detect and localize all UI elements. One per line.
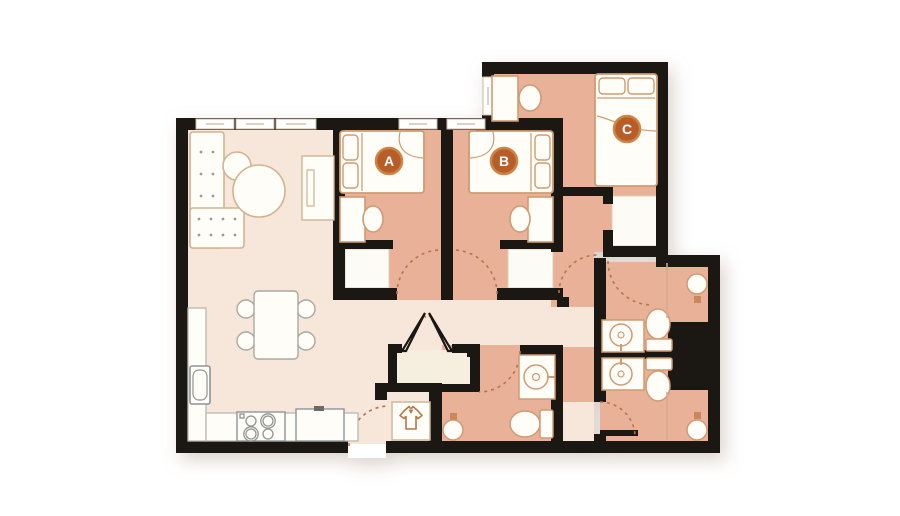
wall-c-left-upper <box>482 62 494 77</box>
shower-head-north <box>694 296 701 303</box>
refrigerator-handle <box>314 406 324 411</box>
refrigerator <box>296 409 344 441</box>
shower-north <box>687 274 707 294</box>
chair-c <box>519 85 541 111</box>
chair-a <box>363 206 383 232</box>
pillow <box>343 163 358 188</box>
wall-closet-c-stub-n <box>603 188 613 204</box>
dining-table <box>254 291 298 359</box>
dining-chair <box>237 332 255 350</box>
wall-laundry-left-stub <box>375 383 387 400</box>
wall-dblcloset-hinge-r <box>452 344 480 353</box>
toilet-tank-south <box>646 358 672 370</box>
wall-corridor-bath-n <box>594 258 606 308</box>
shower-south <box>687 420 707 440</box>
toilet-tank-center <box>540 410 553 438</box>
floor-corridor-junction <box>563 307 594 347</box>
room-badge-c-label: C <box>622 121 632 137</box>
wall-hall-ab <box>441 288 453 300</box>
desk-b <box>528 197 553 242</box>
floor-plan-page: { "plan": { "title": "Three-bedroom apar… <box>0 0 900 516</box>
wall-corridor-bath-s <box>594 434 606 453</box>
shower-head-south <box>694 412 701 419</box>
floor-plan: A B C <box>0 0 900 516</box>
sofa-foot <box>190 208 244 248</box>
laundry-closet <box>392 402 430 440</box>
wall-right-outer <box>708 255 720 453</box>
floor-corridor-south <box>563 402 594 441</box>
pillow <box>343 135 358 160</box>
wall-a-b <box>441 118 453 300</box>
floor-corridor-mid <box>563 347 594 402</box>
wall-hall-b <box>497 288 563 300</box>
toilet-tank-north <box>646 339 672 351</box>
wall-left <box>176 118 188 453</box>
entry-threshold <box>348 444 386 458</box>
desk-c <box>492 76 518 121</box>
wall-closet-c-stub-s <box>603 230 613 246</box>
coffee-table-large <box>233 165 285 217</box>
double-closet-floor <box>396 350 470 384</box>
closet-b <box>508 249 553 288</box>
door-leaf-bath-south <box>600 430 638 436</box>
pillow <box>599 78 625 94</box>
pillow <box>535 163 550 188</box>
wall-closet-c-bottom <box>603 246 668 257</box>
wall-dblcloset-bottom <box>388 384 480 392</box>
shower-head-center <box>450 413 457 420</box>
closet-a <box>345 249 389 288</box>
toilet-bowl-center <box>510 411 540 437</box>
wall-bottom-west <box>176 441 348 453</box>
wall-top-c <box>482 62 668 74</box>
room-badge-b-label: B <box>499 153 509 169</box>
tv <box>307 170 314 206</box>
chair-b <box>510 206 530 232</box>
pillow <box>628 78 654 94</box>
closet-c <box>612 196 658 246</box>
room-badge-a-label: A <box>384 153 394 169</box>
desk-a <box>340 197 365 242</box>
dining-chair <box>237 300 255 318</box>
pillow <box>535 135 550 160</box>
wall-dblcloset-hinge-l <box>388 344 402 353</box>
shower-center <box>443 420 463 440</box>
dining-chair <box>297 332 315 350</box>
wall-hall-a <box>333 288 397 300</box>
dining-chair <box>297 300 315 318</box>
